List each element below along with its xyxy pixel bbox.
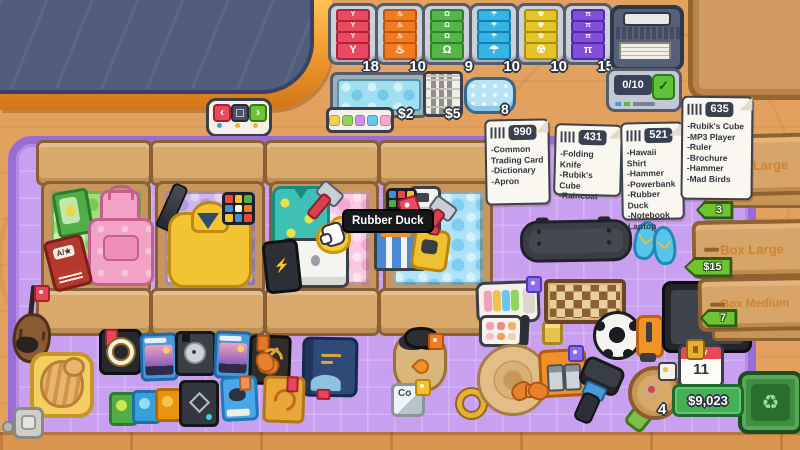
purple-tag[interactable] [526,276,542,293]
umbrella-icon: ☂ [491,11,497,18]
rubiks-cube[interactable] [222,192,255,225]
printer-paper [619,42,671,59]
ink-jar[interactable] [542,321,563,345]
chemical-icon: π [584,44,592,56]
fragile-icon: Y [351,22,356,29]
skateboard-deck [520,219,633,263]
heavy-icon: Ω [444,11,450,18]
fountain-pen[interactable] [519,315,530,346]
order-note-635[interactable]: 635 -Rubik's Cube-MP3 Player-Ruler-Broch… [680,96,753,201]
order-counter: 0/10 ✓ [606,68,682,112]
hazard-tag[interactable] [415,379,431,396]
box-slot [704,248,719,252]
box-top-flap [36,140,152,186]
notebook[interactable] [301,337,358,398]
stop-icon [236,109,244,117]
shelf-box-label: Box Large [720,241,784,257]
chemical-icon: π [585,22,590,29]
order-note-431[interactable]: 431 -Folding Knife-Rubik's Cube-Raincoat [553,123,623,197]
hazard-icon: ☢ [538,33,544,40]
indicator-dot-blue [217,123,222,128]
box-top-flap [378,140,494,186]
umbrella-icon: ☂ [489,44,499,56]
packing-game-screen: ‹ › Y Y Y Y 18 ♨ ♨ ♨ ♨ 10 Ω Ω Ω Ω 9 ☂ ☂ … [0,0,800,450]
hazard-icon: ☢ [538,11,544,18]
order-id: 521 [644,128,673,143]
chemical-icon: π [585,33,590,40]
cd-case[interactable] [175,331,216,376]
counter-indicators [615,102,655,106]
day-value: 11 [681,359,721,381]
desk-socket [13,407,44,439]
umbrella-icon: ☂ [491,33,497,40]
barcode-icon [560,131,575,142]
box-slot [710,303,725,307]
indicator-dot-yellow [253,123,258,128]
conveyor-stop-button[interactable] [231,104,249,122]
small-tag[interactable] [658,362,677,381]
barcode-icon [626,130,641,141]
fragile-icon: Y [351,11,356,18]
sticker-stack-fragile[interactable]: Y Y Y Y 18 [328,3,378,65]
cushion-count: 8 [501,102,509,116]
flammable-icon: ♨ [397,11,403,18]
heavy-icon: Ω [443,44,452,56]
box-bottom-flap [150,288,266,336]
palm-postcard[interactable] [213,330,253,379]
desk-knob [2,421,14,433]
toy-count: 4 [658,402,666,417]
powerbank[interactable]: ⚡ [261,238,302,294]
sticker-stack-hazard[interactable]: ☢ ☢ ☢ ☢ 10 [516,3,566,65]
order-counter-display: 0/10 [614,75,652,95]
box-top-flap [264,140,380,186]
heavy-icon: Ω [444,33,450,40]
barcode-icon [490,127,505,138]
box-top-flap [150,140,266,186]
order-id: 990 [508,125,537,140]
item-tooltip: Rubber Duck [342,209,434,233]
sticker-stack-heavy[interactable]: Ω Ω Ω Ω 9 [422,3,472,65]
box-bottom-flap [264,288,380,336]
cat-figure [40,360,84,408]
calendar-ring [688,341,703,358]
apron[interactable] [88,218,154,286]
price-tag-medium[interactable]: 7 [700,309,737,327]
fragile-icon: Y [349,44,356,56]
swatch-yellow[interactable] [329,115,340,126]
flammable-tag[interactable] [428,333,444,350]
recycle-bin[interactable]: ♻ [738,371,800,434]
sticker-stack-flammable[interactable]: ♨ ♨ ♨ ♨ 10 [375,3,425,65]
price-tag-large[interactable]: $15 [684,257,732,277]
label-printer[interactable] [610,5,684,71]
purple-tag[interactable] [568,345,584,362]
check-icon: ✓ [658,78,669,93]
indicator-dot-yellow [235,123,240,128]
order-items: -Rubik's Cube-MP3 Player-Ruler-Brochure-… [683,119,752,187]
chevron-left-icon: ‹ [220,105,224,119]
hazard-icon: ☢ [538,22,544,29]
desk-front-edge [0,432,800,450]
hat-ribbon-bow[interactable] [511,376,549,406]
chemical-icon: π [585,11,590,18]
orange-mp3-player[interactable] [636,315,664,358]
conveyor-right-button[interactable]: › [249,104,267,122]
chevron-right-icon: › [256,105,260,119]
dragon-card[interactable] [262,375,306,423]
conveyor-left-button[interactable]: ‹ [213,104,231,122]
skateboard[interactable] [520,216,627,260]
swatch-blue[interactable] [367,115,378,126]
paint-palette[interactable] [479,315,523,347]
day-calendar: Day 11 [678,344,724,388]
umbrella-icon: ☂ [491,22,497,29]
printer-band [614,27,680,39]
sticker-stack-chemical[interactable]: π π π π 15 [563,3,613,65]
soccer-ball[interactable] [593,311,642,360]
order-id: 635 [705,102,734,117]
mad-birds-card[interactable] [220,375,259,422]
flammable-icon: ♨ [395,44,405,56]
order-id: 431 [578,130,607,146]
barcode-icon [687,104,702,115]
vinyl-record[interactable] [99,329,142,375]
mad-birds-toy[interactable] [409,227,451,274]
money-display: $9,023 [672,384,744,417]
conveyor-belt-panel [0,0,314,94]
bubble-wrap-price: $2 [398,106,414,120]
swatch-green[interactable] [342,115,353,126]
order-note-990[interactable]: 990 -Common Trading Card-Dictionary-Apro… [484,118,550,205]
order-items: -Common Trading Card-Dictionary-Apron [487,141,549,188]
bolt-icon: ⚡ [273,257,291,274]
dark-trading-card[interactable] [179,380,219,427]
newspaper-price: $5 [445,106,461,120]
flammable-icon: ♨ [397,33,403,40]
flammable-icon: ♨ [397,22,403,29]
fragile-icon: Y [351,33,356,40]
flame-icon [411,356,432,377]
fragile-tag[interactable] [34,285,50,302]
wrap-color-palette[interactable] [326,107,394,133]
palm-postcard[interactable] [139,332,179,381]
printer-slot [623,12,671,26]
heavy-icon: Ω [444,22,450,29]
price-tag-xlarge[interactable]: 3 [696,201,733,219]
recycle-icon: ♻ [751,384,790,421]
conveyor-controls: ‹ › [206,98,272,137]
hazard-icon: ☢ [536,44,546,56]
swatch-pink[interactable] [380,115,391,126]
sticker-stack-keep-dry[interactable]: ☂ ☂ ☂ ☂ 10 [469,3,519,65]
order-note-521[interactable]: 521 -Hawaii Shirt-Hammer-Powerbank-Rubbe… [620,121,685,220]
cardboard-slab [688,0,800,100]
order-items: -Folding Knife-Rubik's Cube-Raincoat [555,146,620,204]
order-items: -Hawaii Shirt-Hammer-Powerbank-Rubber Du… [623,144,684,233]
confirm-button[interactable]: ✓ [652,74,675,100]
swatch-purple[interactable] [355,115,366,126]
